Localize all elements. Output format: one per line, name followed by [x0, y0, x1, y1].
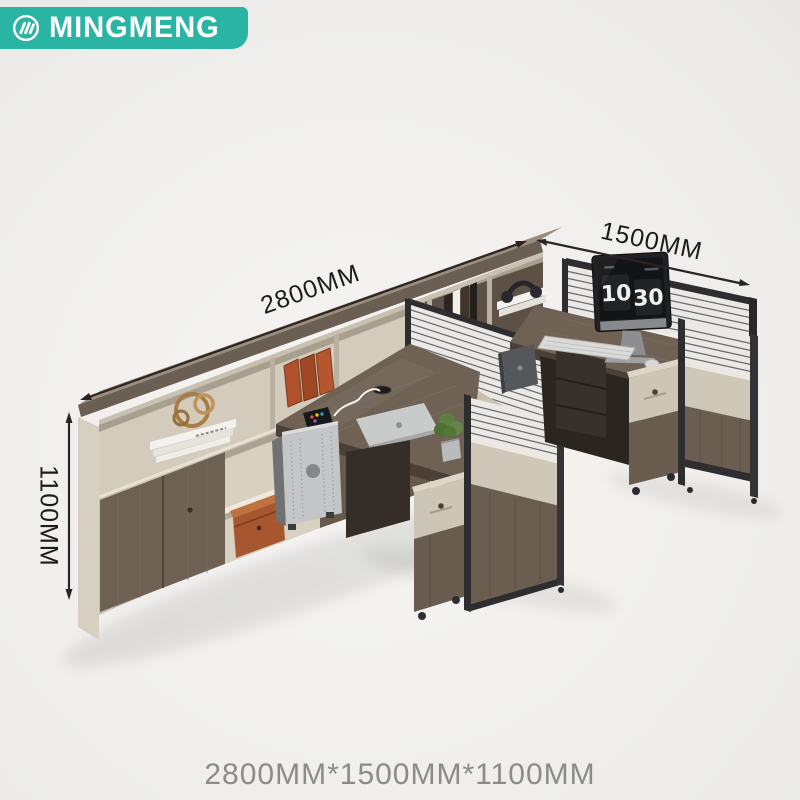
- clock-hours: 10: [600, 281, 632, 308]
- clock-minutes: 30: [633, 285, 665, 312]
- brand-name: MINGMENG: [49, 13, 220, 43]
- mingmeng-logo-icon: [9, 11, 43, 45]
- brand-banner: MINGMENG: [0, 7, 248, 49]
- height-label: 1100MM: [34, 465, 62, 566]
- desk2-pedestal: [627, 359, 681, 495]
- height-dimension-arrow: [66, 412, 73, 600]
- product-page: { "brand": { "name": "MINGMENG", "icon":…: [0, 0, 800, 800]
- size-summary-text: 2800MM*1500MM*1100MM: [0, 758, 800, 792]
- desk2-end-panel: [678, 318, 758, 504]
- door-handle: [187, 507, 192, 512]
- mac-pro-tower: [272, 421, 342, 530]
- desk1-pedestal: [412, 472, 466, 620]
- desk2-under-drawers: [556, 348, 606, 438]
- credenza-left-panel: [78, 417, 99, 640]
- product-scene: 10 30: [0, 0, 800, 800]
